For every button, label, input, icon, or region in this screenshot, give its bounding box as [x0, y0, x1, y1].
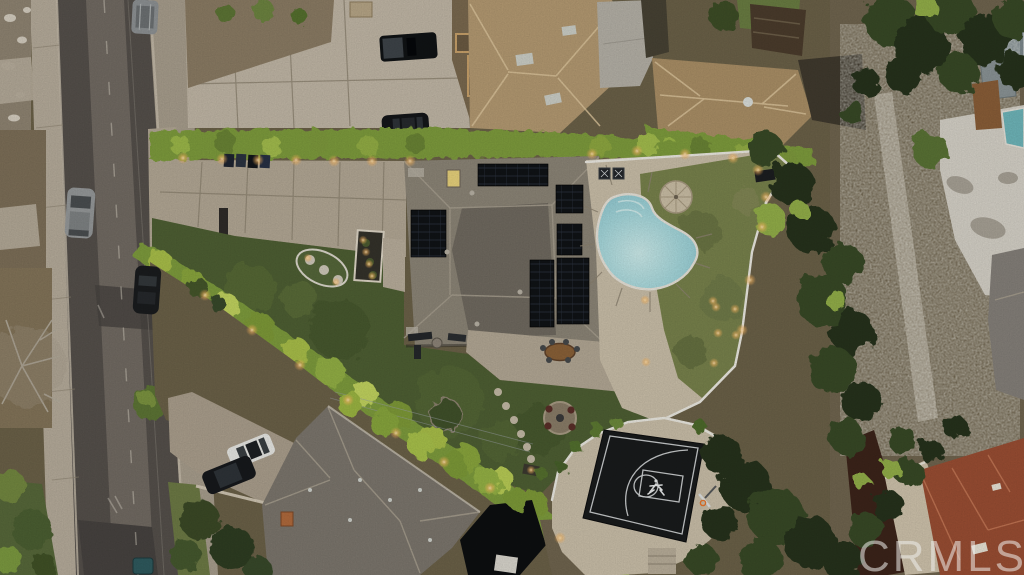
photo-grain: [0, 0, 1024, 575]
aerial-photo-canvas: CRMLS: [0, 0, 1024, 575]
crmls-watermark: CRMLS: [858, 532, 1024, 575]
aerial-photo: CRMLS: [0, 0, 1024, 575]
